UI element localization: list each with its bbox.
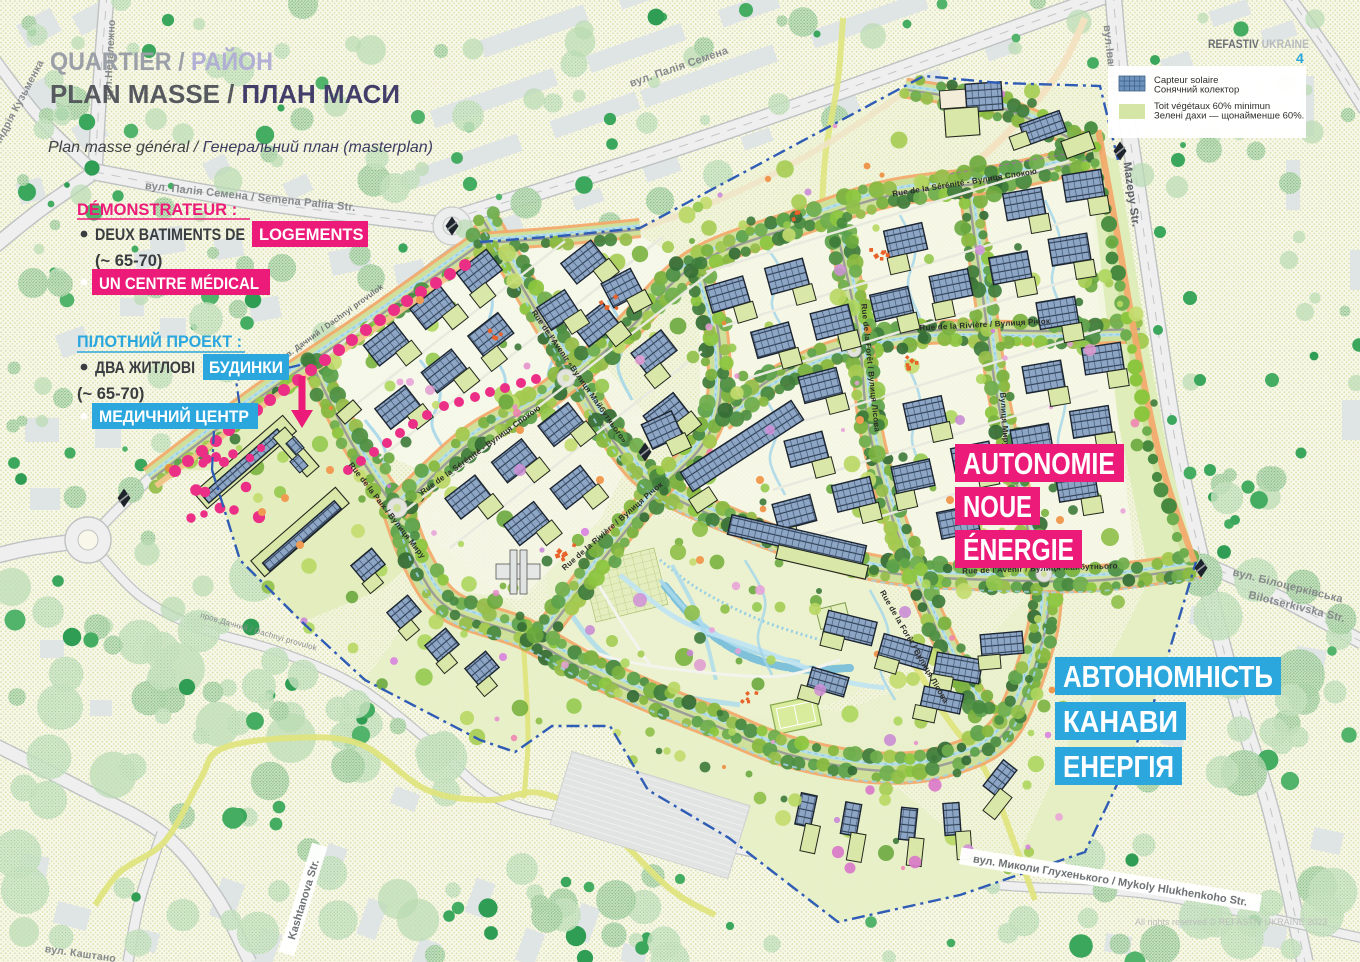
svg-text:Plan masse général / Генеральн: Plan masse général / Генеральний план (m… xyxy=(48,139,433,156)
svg-text:ЕНЕРГІЯ: ЕНЕРГІЯ xyxy=(1063,749,1174,784)
svg-text:PLAN MASSE / ПЛАН МАСИ: PLAN MASSE / ПЛАН МАСИ xyxy=(50,79,400,109)
svg-text:QUARTIER / РАЙОН: QUARTIER / РАЙОН xyxy=(50,46,273,76)
svg-text:UN CENTRE MÉDICAL: UN CENTRE MÉDICAL xyxy=(99,274,259,293)
svg-text:ПІЛОТНИЙ ПРОЕКТ :: ПІЛОТНИЙ ПРОЕКТ : xyxy=(77,332,242,351)
svg-text:LOGEMENTS: LOGEMENTS xyxy=(259,226,364,244)
svg-text:КАНАВИ: КАНАВИ xyxy=(1063,704,1178,739)
svg-text:AUTONOMIE: AUTONOMIE xyxy=(963,446,1115,481)
svg-text:Зелені дахи — щонайменше 60%.: Зелені дахи — щонайменше 60%. xyxy=(1154,111,1304,122)
svg-text:All rights reserved © REFASTIV: All rights reserved © REFASTIV UKRAINE 2… xyxy=(1135,917,1327,927)
svg-text:ДВА ЖИТЛОВІ: ДВА ЖИТЛОВІ xyxy=(95,359,195,377)
svg-text:ÉNERGIE: ÉNERGIE xyxy=(963,532,1074,567)
svg-text:(~ 65-70): (~ 65-70) xyxy=(95,252,162,270)
svg-text:REFASTIV UKRAINE: REFASTIV UKRAINE xyxy=(1208,37,1309,51)
svg-text:(~ 65-70): (~ 65-70) xyxy=(77,385,144,403)
svg-text:АВТОНОМНІСТЬ: АВТОНОМНІСТЬ xyxy=(1063,659,1273,694)
svg-text:МЕДИЧНИЙ ЦЕНТР: МЕДИЧНИЙ ЦЕНТР xyxy=(99,407,249,426)
svg-text:4: 4 xyxy=(1296,50,1304,66)
svg-text:БУДИНКИ: БУДИНКИ xyxy=(209,359,283,377)
svg-text:DÉMONSTRATEUR :: DÉMONSTRATEUR : xyxy=(77,200,237,219)
svg-text:DEUX BATIMENTS DE: DEUX BATIMENTS DE xyxy=(95,226,245,244)
svg-text:Сонячний колектор: Сонячний колектор xyxy=(1154,85,1239,96)
svg-text:NOUE: NOUE xyxy=(963,489,1032,524)
